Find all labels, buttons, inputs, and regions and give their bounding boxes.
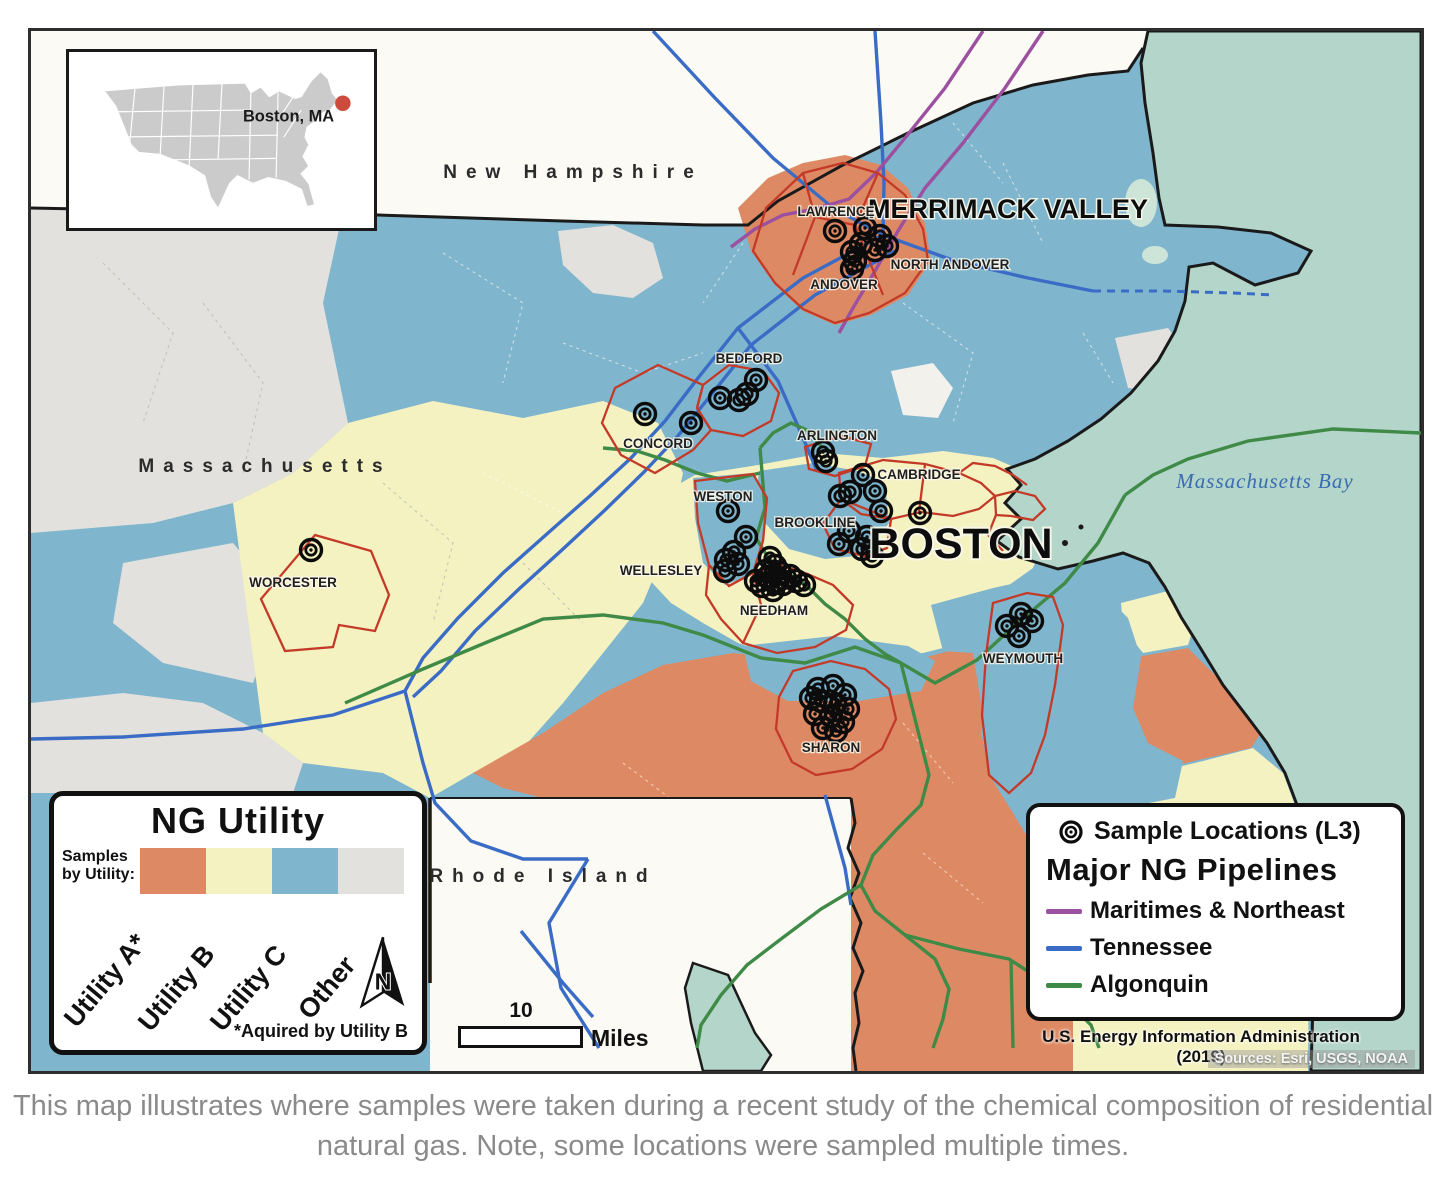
label-sharon: SHARON xyxy=(802,740,861,755)
ng-utility-legend: NG Utility Samples by Utility: Utility A… xyxy=(49,791,427,1055)
ng-utility-legend-title: NG Utility xyxy=(54,800,422,842)
label-rhode-island: Rhode Island xyxy=(429,866,656,887)
utility-footnote: *Aquired by Utility B xyxy=(234,1021,408,1042)
map-frame: New Hampshire Massachusetts Rhode Island… xyxy=(28,28,1424,1074)
label-brookline: BROOKLINE xyxy=(775,515,856,530)
sample-location-icon xyxy=(1058,819,1084,845)
utility-c-swatch xyxy=(272,848,338,894)
other-label: Other xyxy=(292,950,362,1025)
label-merrimack-valley: MERRIMACK VALLEY xyxy=(868,194,1148,224)
other-swatch xyxy=(338,848,404,894)
label-new-hampshire: New Hampshire xyxy=(443,162,703,183)
label-weymouth: WEYMOUTH xyxy=(983,651,1063,666)
label-massachusetts-bay: Massachusetts Bay xyxy=(1175,469,1353,493)
label-andover: ANDOVER xyxy=(810,277,878,292)
attribution-credits: Sources: Esri, USGS, NOAA xyxy=(1208,1050,1415,1068)
pipelines-legend-title: Major NG Pipelines xyxy=(1046,852,1387,888)
label-lawrence: LAWRENCE xyxy=(797,204,874,219)
samples-by-utility-label: Samples by Utility: xyxy=(62,848,146,885)
pipelines-legend: Sample Locations (L3) Major NG Pipelines… xyxy=(1026,803,1405,1021)
label-massachusetts: Massachusetts xyxy=(138,456,391,477)
label-arlington: ARLINGTON xyxy=(797,428,877,443)
label-north-andover: NORTH ANDOVER xyxy=(891,257,1010,272)
legend-item-tennessee: Tennessee xyxy=(1046,934,1387,962)
tennessee-label: Tennessee xyxy=(1090,934,1212,962)
scalebar xyxy=(458,1026,583,1048)
label-concord: CONCORD xyxy=(623,436,693,451)
svg-text:N: N xyxy=(375,968,392,994)
inset-boston-label: Boston, MA xyxy=(243,108,334,126)
label-wellesley: WELLESLEY xyxy=(620,563,703,578)
utility-a-swatch xyxy=(140,848,206,894)
harbor-island xyxy=(1062,540,1068,546)
scalebar-unit: Miles xyxy=(591,1025,649,1052)
harbor-island xyxy=(1079,525,1084,530)
north-arrow-icon: N xyxy=(354,934,412,1012)
scalebar-value: 10 xyxy=(486,999,556,1023)
usa-inset-map: Boston, MA xyxy=(66,49,377,231)
utility-color-swatches xyxy=(140,848,404,894)
label-needham: NEEDHAM xyxy=(740,603,808,618)
sample-locations-label: Sample Locations (L3) xyxy=(1094,817,1361,846)
boston-location-dot xyxy=(335,96,350,111)
maritimes-line-swatch xyxy=(1046,909,1082,914)
label-boston: BOSTON xyxy=(869,520,1052,568)
sample-locations-row: Sample Locations (L3) xyxy=(1058,817,1387,846)
tennessee-line-swatch xyxy=(1046,946,1082,951)
algonquin-label: Algonquin xyxy=(1090,971,1209,999)
label-cambridge: CAMBRIDGE xyxy=(877,467,960,482)
algonquin-line-swatch xyxy=(1046,983,1082,988)
maritimes-label: Maritimes & Northeast xyxy=(1090,897,1345,925)
marsh-patch xyxy=(1142,246,1168,264)
label-worcester: WORCESTER xyxy=(249,575,337,590)
figure-caption: This map illustrates where samples were … xyxy=(0,1086,1446,1166)
legend-item-algonquin: Algonquin xyxy=(1046,971,1387,999)
label-bedford: BEDFORD xyxy=(716,351,783,366)
legend-item-maritimes: Maritimes & Northeast xyxy=(1046,897,1387,925)
utility-b-swatch xyxy=(206,848,272,894)
usa-inset-svg: Boston, MA xyxy=(69,52,374,228)
label-weston: WESTON xyxy=(693,489,752,504)
